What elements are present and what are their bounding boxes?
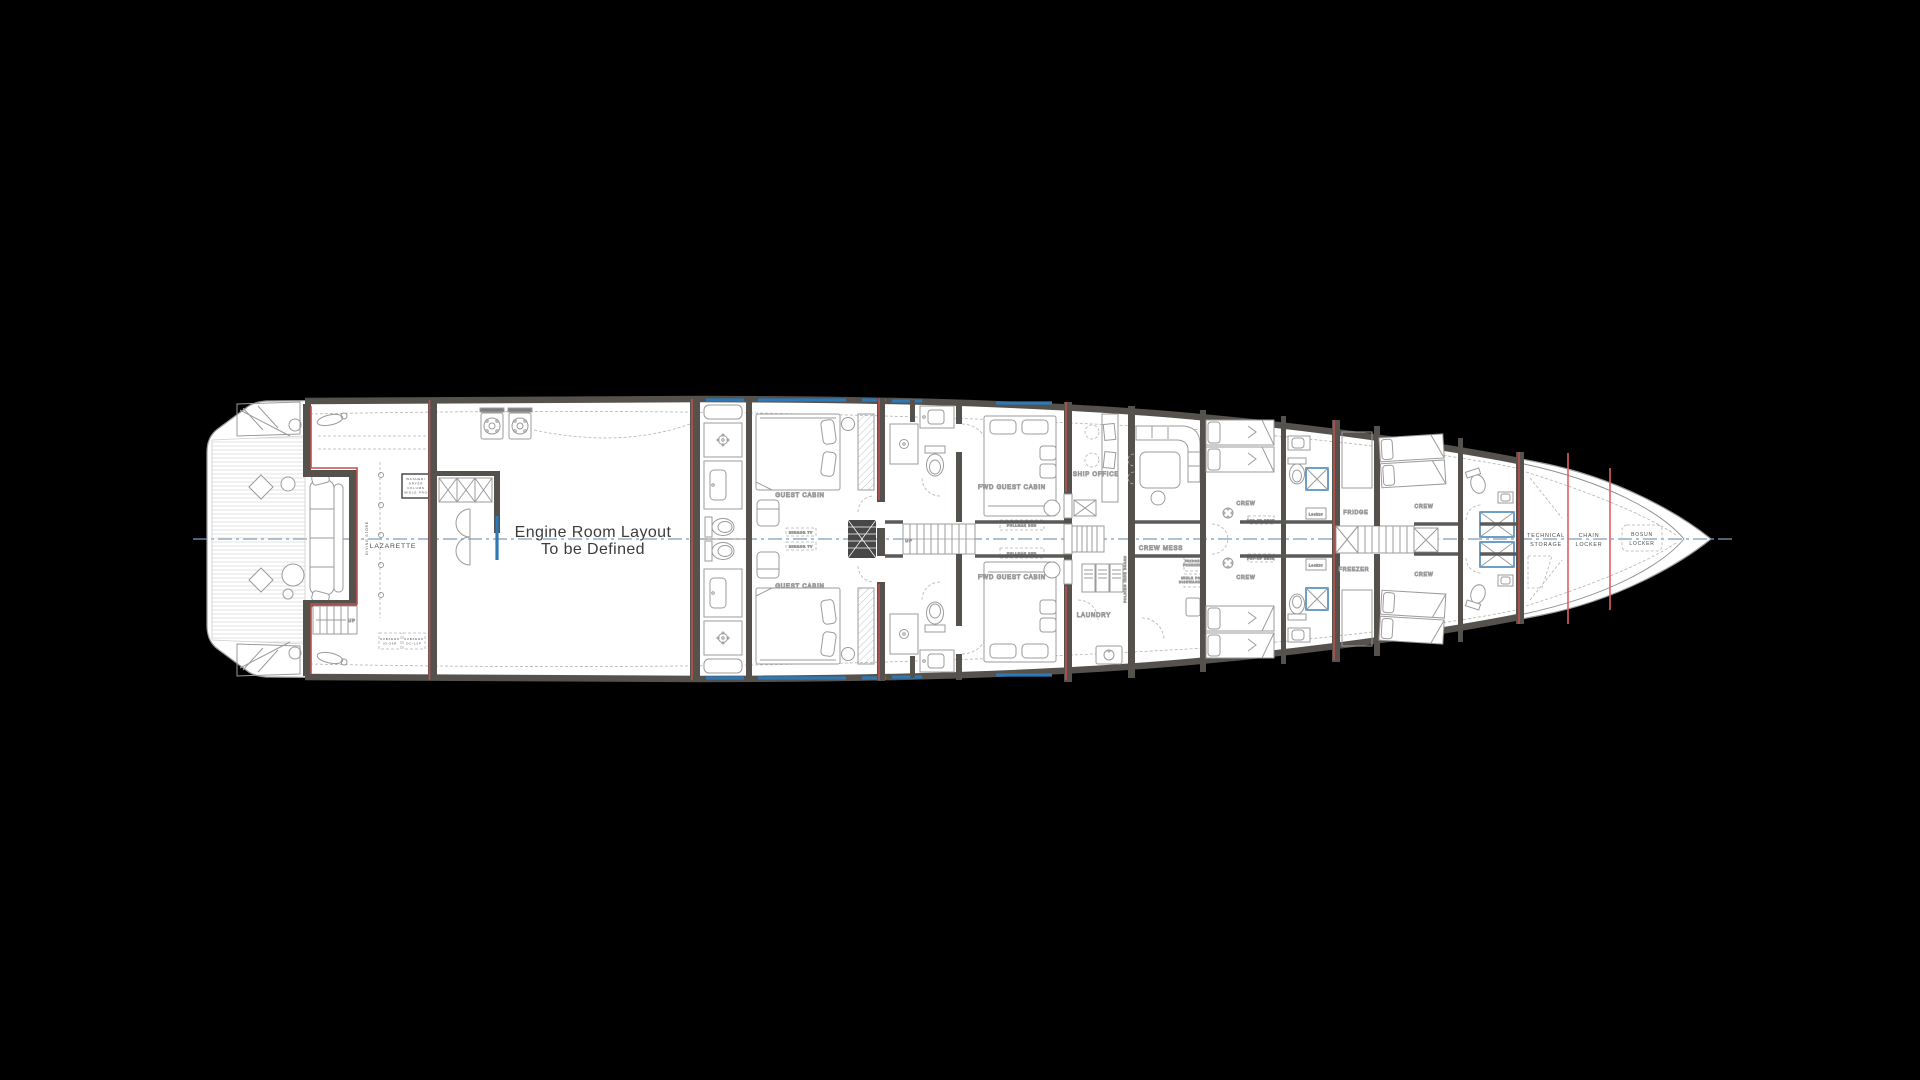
label-bosun-locker-1: BOSUN <box>1631 532 1653 538</box>
label-locker-upper: Locker <box>1309 513 1324 517</box>
label-diving-store: DIVING STORE <box>365 521 369 555</box>
label-technical-storage-2: STORAGE <box>1530 542 1562 548</box>
label-up-main: UP <box>905 538 912 543</box>
label-laundry: LAUNDRY <box>1077 613 1111 619</box>
svg-text:FREEZER: FREEZER <box>1183 563 1202 567</box>
svg-text:ID-36R: ID-36R <box>383 642 397 646</box>
toilet-upper <box>705 517 734 537</box>
label-technical-storage-1: TECHNICAL <box>1527 533 1565 539</box>
teak-deck <box>212 436 305 644</box>
main-stairs: UP <box>903 524 975 554</box>
svg-text:DRYER: DRYER <box>409 482 423 486</box>
label-up-stern: UP <box>348 618 355 623</box>
canvas: DIVING STORE LAZARETTE WASHER/ DRYER COL… <box>0 0 1920 1080</box>
label-chain-locker-2: LOCKER <box>1576 542 1603 548</box>
label-engine-room-1: Engine Room Layout <box>515 524 672 541</box>
label-bosun-locker-2: LOCKER <box>1629 541 1654 547</box>
toilet-lower <box>705 541 734 561</box>
svg-text:WASHER/: WASHER/ <box>406 477 426 481</box>
svg-text:MIELE PRO: MIELE PRO <box>404 491 428 495</box>
svg-text:SUBZERO: SUBZERO <box>380 637 400 641</box>
label-fwd-guest-cabin-lower: FWD GUEST CABIN <box>978 575 1046 581</box>
label-crew-mess: CREW MESS <box>1139 546 1183 552</box>
label-crew-fwd-upper: CREW <box>1414 504 1433 510</box>
label-guest-cabin-upper: GUEST CABIN <box>775 493 824 499</box>
yacht-deck-plan: DIVING STORE LAZARETTE WASHER/ DRYER COL… <box>0 0 1920 1080</box>
stern-stairs: UP <box>313 606 357 634</box>
label-folding-iron-board: FOLDING IRON BOARD <box>1123 555 1127 603</box>
label-fridge: FRIDGE <box>1343 510 1368 516</box>
label-crew-fwd-lower: CREW <box>1414 572 1433 578</box>
laundry-appliances <box>1082 564 1123 592</box>
label-mirror-tv-upper: MIRROR TV <box>789 531 813 535</box>
fwd-guest-cabin-upper: FWD GUEST CABIN PULLMAN BED <box>978 416 1060 530</box>
companionway-stairs <box>848 520 876 558</box>
label-chain-locker-1: CHAIN <box>1579 533 1600 539</box>
label-crew-aft-upper: CREW <box>1236 501 1255 507</box>
label-lazarette: LAZARETTE <box>370 543 416 550</box>
svg-text:COLUMN: COLUMN <box>407 486 425 490</box>
svg-text:DC-15P: DC-15P <box>406 642 421 646</box>
toilet-fwd-lower <box>925 602 945 632</box>
fwd-guest-cabin-lower: FWD GUEST CABIN PULLMAN BED <box>978 548 1060 662</box>
label-engine-room-2: To be Defined <box>541 541 645 558</box>
washer-dryer-column: WASHER/ DRYER COLUMN MIELE PRO <box>402 474 430 498</box>
label-pullman-upper: PULLMAN BED <box>1007 524 1037 528</box>
label-crew-aft-lower: CREW <box>1236 575 1255 581</box>
label-locker-lower: Locker <box>1309 564 1324 568</box>
label-guest-cabin-lower: GUEST CABIN <box>775 584 824 590</box>
label-freezer: FREEZER <box>1339 567 1370 573</box>
label-mirror-tv-lower: MIRROR TV <box>789 545 813 549</box>
svg-text:SUBZERO: SUBZERO <box>404 637 424 641</box>
mid-escape-stairs <box>1072 526 1104 552</box>
toilet-fwd-upper <box>925 446 945 476</box>
fwd-staircase <box>1336 526 1438 553</box>
label-ship-office: SHIP OFFICE <box>1073 472 1119 478</box>
label-fwd-guest-cabin-upper: FWD GUEST CABIN <box>978 485 1046 491</box>
